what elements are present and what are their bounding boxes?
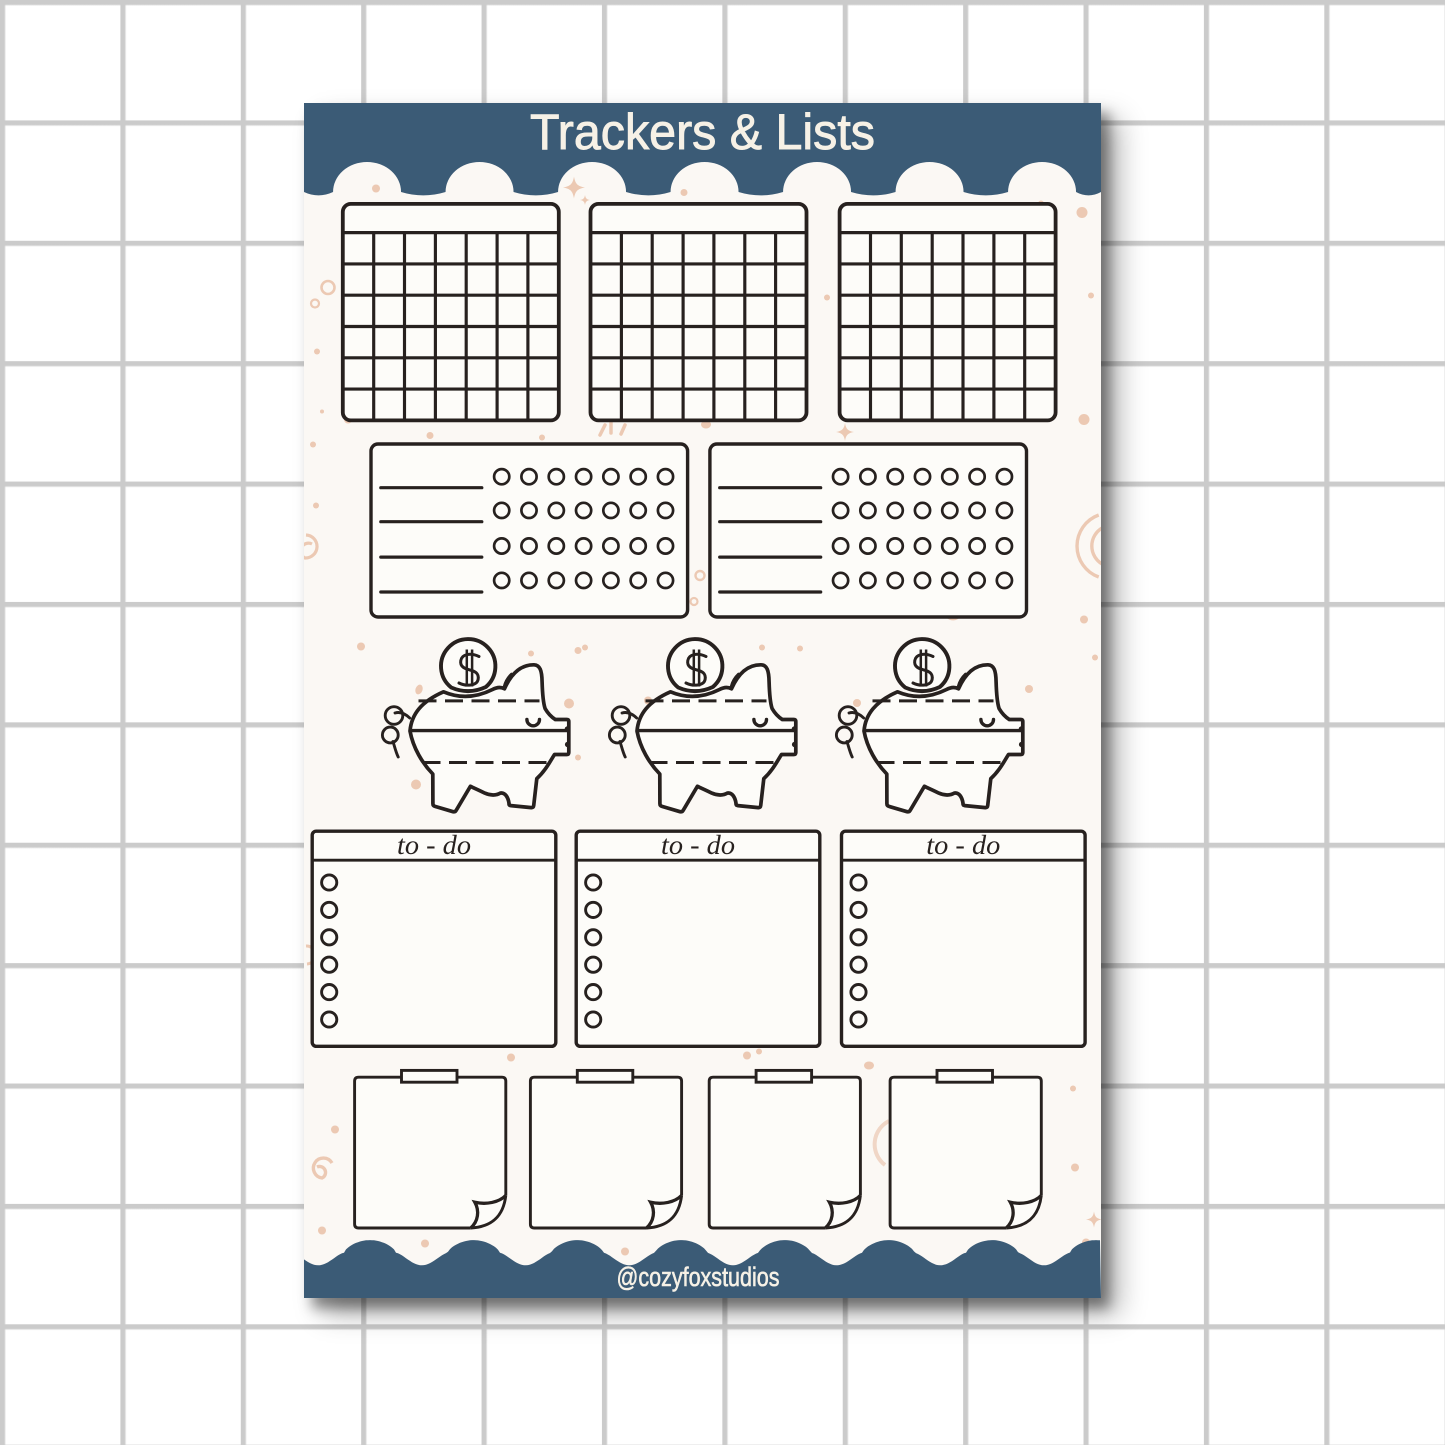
svg-text:@cozyfoxstudios: @cozyfoxstudios [617, 1262, 780, 1292]
svg-text:Trackers & Lists: Trackers & Lists [530, 104, 875, 160]
